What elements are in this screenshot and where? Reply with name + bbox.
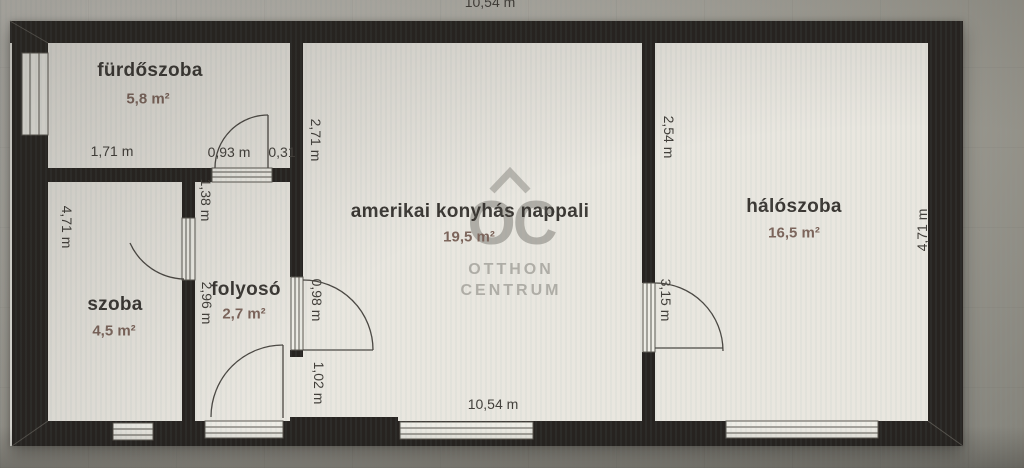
wall-bath-bottom-left xyxy=(48,168,212,182)
dim-left-side: 4,71 m xyxy=(59,206,75,249)
dim-furdoszoba-door: 0,93 m xyxy=(208,144,251,160)
window-haloszoba-bottom xyxy=(726,421,878,438)
window-szoba-bottom xyxy=(113,423,153,440)
window-bathroom-left xyxy=(22,53,48,135)
doorframe-nappali-upper xyxy=(291,277,303,350)
room-label-nappali: amerikai konyhás nappali xyxy=(351,201,589,223)
dim-bottom-total: 10,54 m xyxy=(468,396,519,412)
dim-folyoso-top: 1,38 m xyxy=(198,179,214,222)
wall-folyoso-nappali-base xyxy=(290,417,398,446)
room-area-szoba: 4,5 m² xyxy=(92,323,135,340)
wall-right xyxy=(928,21,963,446)
doorframe-bathroom xyxy=(212,168,272,182)
dim-folyoso-left: 2,96 m xyxy=(199,282,215,325)
doorframe-szoba xyxy=(182,218,195,280)
watermark-brand-line2: CENTRUM xyxy=(461,282,562,300)
dim-haloszoba-upper: 2,54 m xyxy=(661,116,677,159)
wall-szoba-folyoso-lower xyxy=(182,280,195,421)
dim-top-total: 10,54 m xyxy=(465,0,516,10)
dim-nappali-upper-left: 2,71 m xyxy=(308,119,324,162)
window-folyoso-bottom xyxy=(205,421,283,438)
dim-folyoso-door-upper: 0,98 m xyxy=(309,279,325,322)
dim-furdoszoba-width: 1,71 m xyxy=(91,143,134,159)
dim-right-side: 4,71 m xyxy=(914,209,930,252)
room-area-folyoso: 2,7 m² xyxy=(222,306,265,323)
doorframe-haloszoba xyxy=(643,283,655,352)
dim-furdoszoba-wall-stub: 0,31 xyxy=(268,144,295,160)
watermark-brand-line1: OTTHON xyxy=(468,261,554,279)
wall-folyoso-nappali-upper xyxy=(290,43,303,277)
wall-nappali-halo-upper xyxy=(642,43,655,283)
room-label-haloszoba: hálószoba xyxy=(746,196,842,218)
room-area-furdoszoba: 5,8 m² xyxy=(126,91,169,108)
wall-szoba-folyoso-upper xyxy=(182,182,195,218)
window-nappali-bottom xyxy=(400,422,533,439)
room-label-szoba: szoba xyxy=(87,294,142,316)
floorplan-photo: OC OTTHON CENTRUM fürdőszoba 5,8 m² szob… xyxy=(0,0,1024,468)
dim-haloszoba-door: 3,15 m xyxy=(658,279,674,322)
wall-top xyxy=(10,21,963,43)
room-area-haloszoba: 16,5 m² xyxy=(768,225,820,242)
room-label-folyoso: folyosó xyxy=(211,279,281,301)
room-area-nappali: 19,5 m² xyxy=(443,229,495,246)
dim-folyoso-door-lower: 1,02 m xyxy=(311,362,327,405)
wall-folyoso-nappali-mid xyxy=(290,350,303,357)
wall-nappali-halo-lower xyxy=(642,352,655,446)
room-label-furdoszoba: fürdőszoba xyxy=(97,60,202,82)
